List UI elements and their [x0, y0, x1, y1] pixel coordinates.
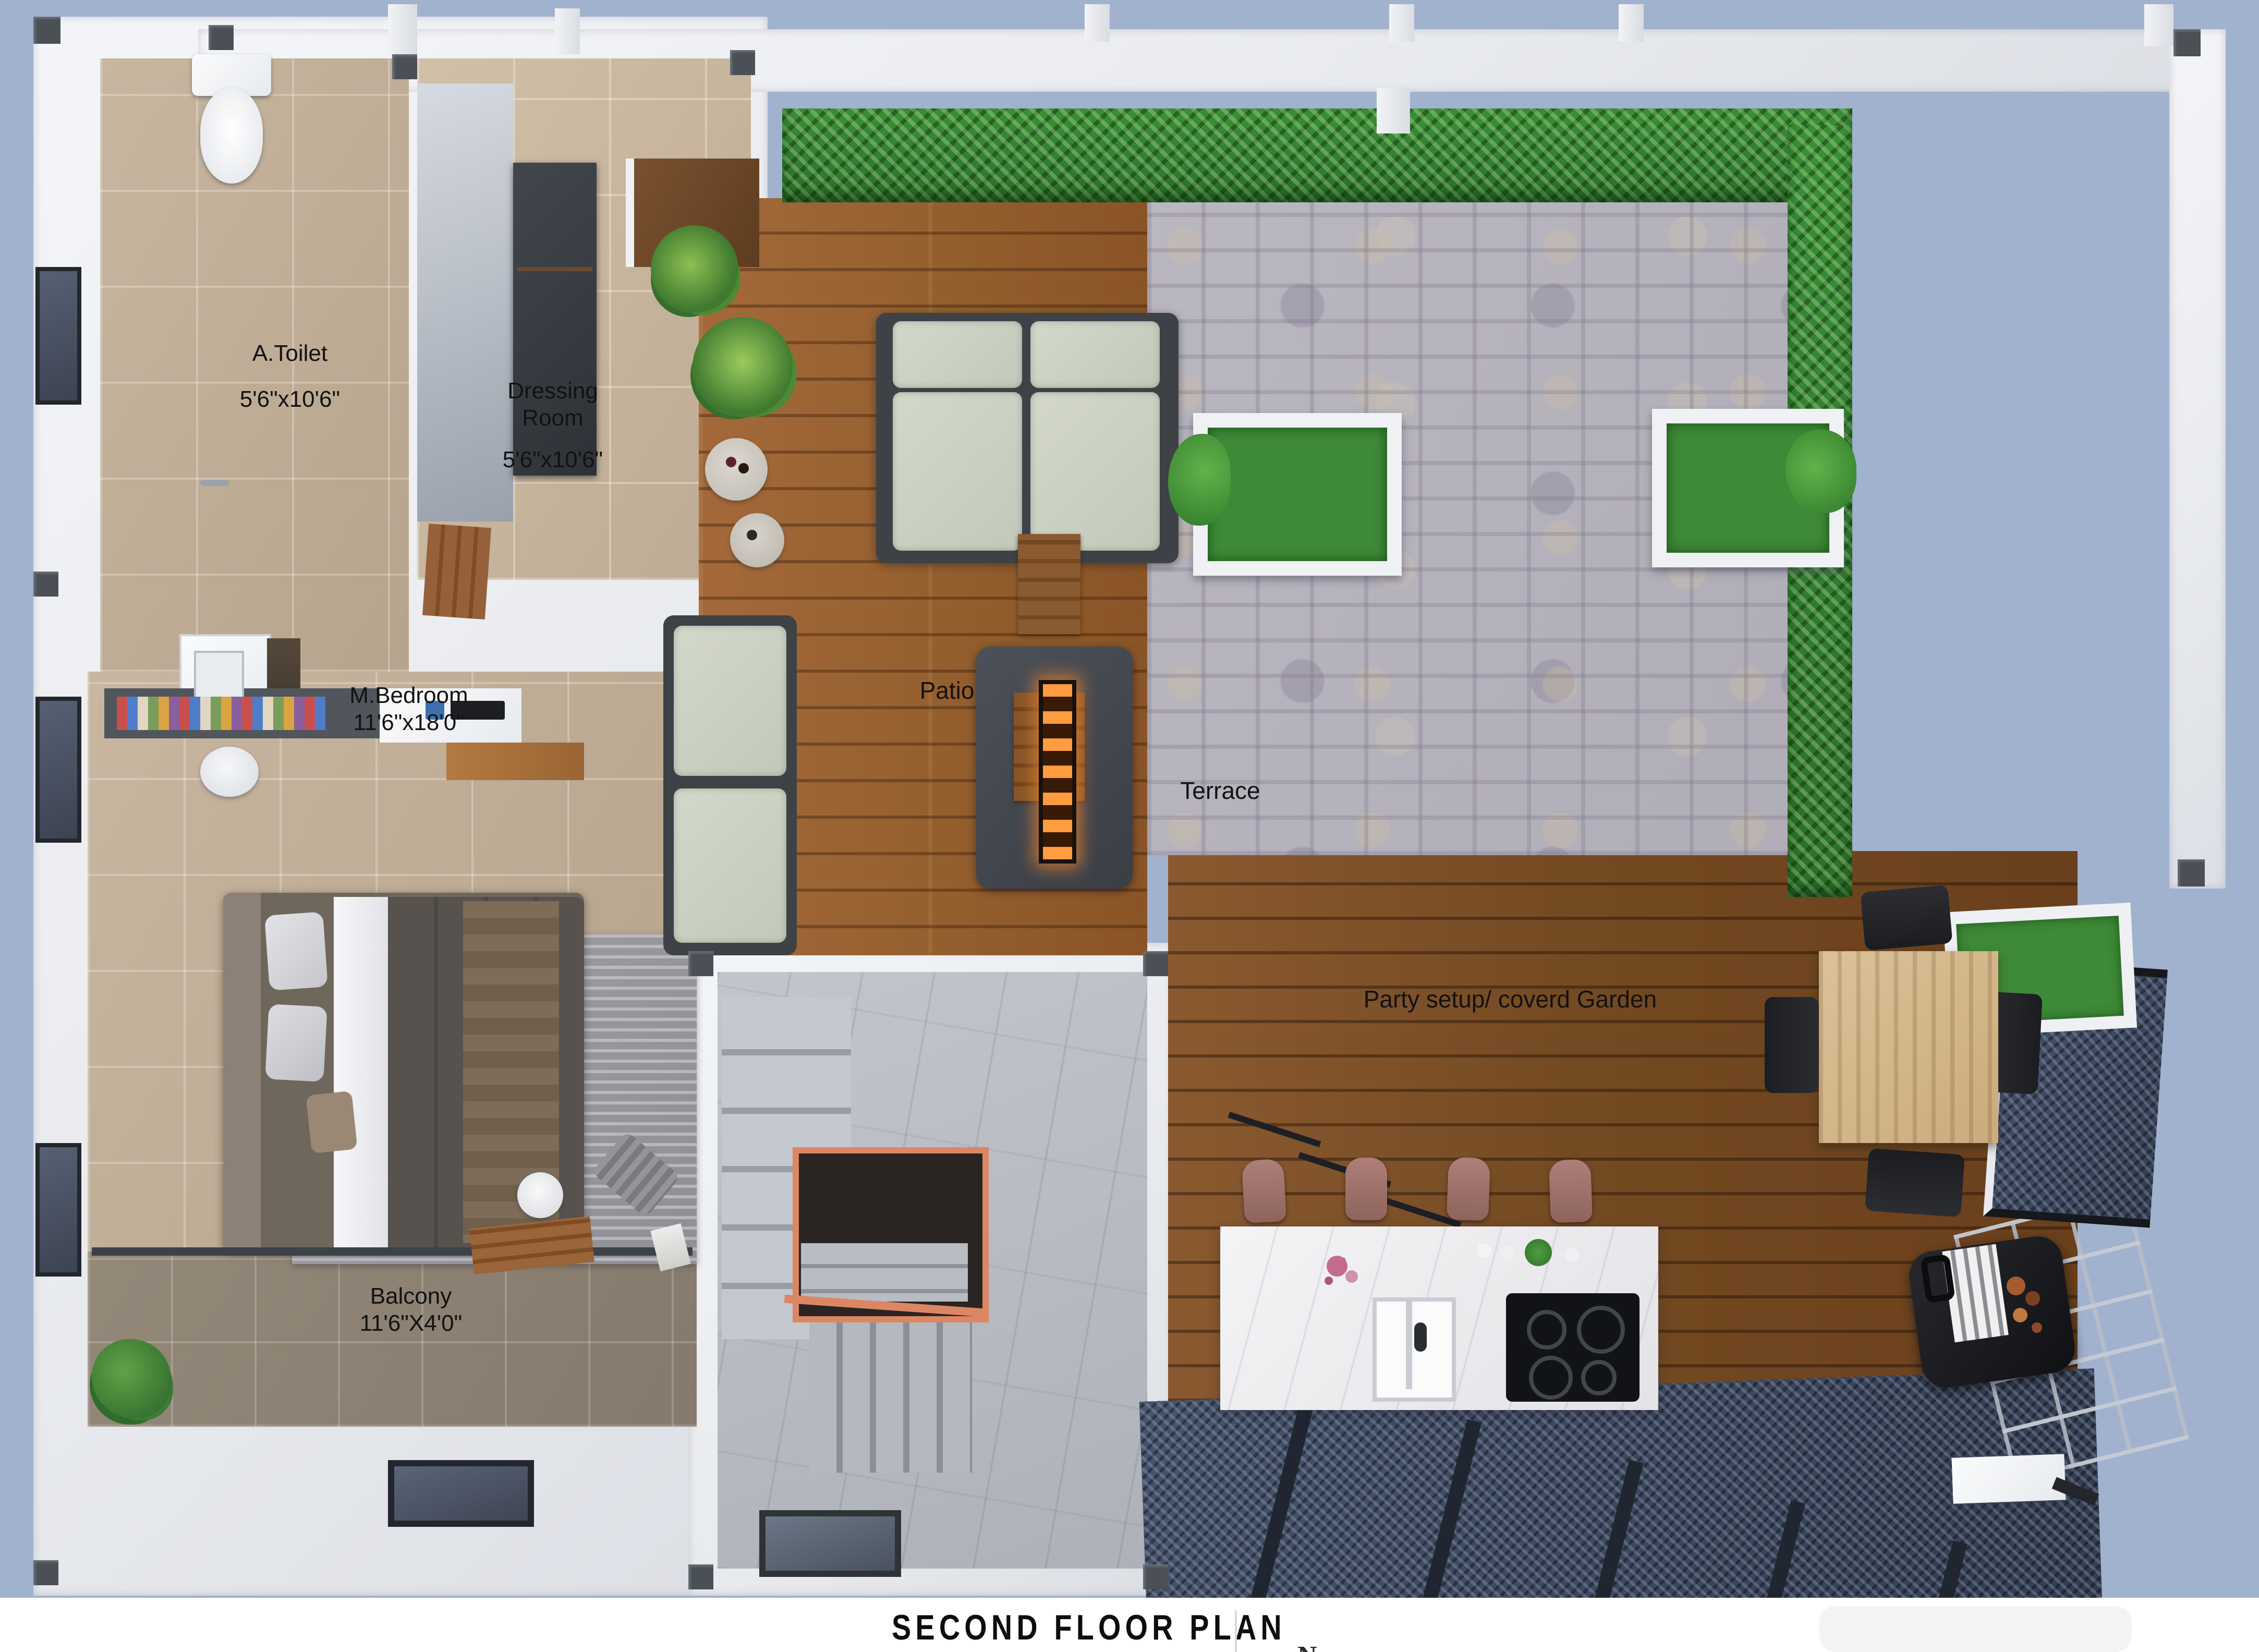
label-dressing: Dressing Room 5'6"x10'6"	[448, 380, 657, 476]
pillar-cap	[730, 50, 755, 75]
l-sofa-cushion	[674, 788, 786, 943]
pillar-cap	[392, 54, 417, 79]
label-patio: Patio	[843, 680, 1051, 707]
dining-chair	[1765, 997, 1819, 1093]
bar-stool	[1549, 1159, 1593, 1223]
label-balcony: Balcony 11'6"X4'0"	[307, 1285, 515, 1339]
balcony-name: Balcony	[307, 1285, 515, 1312]
bottom-white-beam	[1952, 1454, 2066, 1503]
wardrobe-shelf-line	[517, 267, 592, 271]
cooktop	[1506, 1293, 1639, 1402]
desk-chair	[200, 747, 259, 797]
balcony-door-track	[92, 1247, 693, 1256]
sofa-seat-cushion	[893, 392, 1022, 551]
pillar-stub	[1619, 4, 1644, 42]
balcony-floor	[88, 1252, 697, 1427]
bed-headboard	[223, 893, 261, 1252]
dressing-line2: Room	[448, 407, 657, 434]
pillar-cap	[209, 25, 234, 50]
stair-lower-steps	[809, 1318, 972, 1473]
dining-chair	[1865, 1148, 1965, 1218]
floor-plan-render: A.Toilet 5'6"x10'6" Dressing Room 5'6"x1…	[0, 0, 2259, 1652]
desk-wood-top	[446, 743, 584, 780]
pillar-cap	[688, 1564, 713, 1589]
bed-sheet-fold	[334, 897, 388, 1247]
palm-plant	[693, 317, 793, 417]
hedge-top	[782, 108, 1852, 202]
planter-foliage	[1786, 430, 1856, 513]
bed-pillow	[265, 1004, 327, 1082]
dining-chair	[1860, 885, 1952, 951]
pillar-cap	[33, 1560, 58, 1585]
door-handle	[200, 480, 229, 486]
burner	[1527, 1310, 1566, 1350]
round-side-table	[705, 438, 768, 501]
burner	[1577, 1306, 1625, 1354]
window	[35, 267, 81, 405]
pillar-cap	[33, 572, 58, 597]
bed-pillow-small	[306, 1091, 357, 1154]
dressing-dims: 5'6"x10'6"	[448, 448, 657, 476]
bedroom-dims: 11'6"x18'0"	[305, 711, 513, 738]
pillar-stub	[555, 8, 580, 54]
drinks-on-table	[726, 457, 736, 467]
dressing-line1: Dressing	[448, 380, 657, 407]
sofa-back-cushion	[1030, 321, 1160, 388]
burner	[1581, 1360, 1617, 1395]
toilet-dims: 5'6"x10'6"	[186, 388, 394, 415]
toilet-name: A.Toilet	[186, 342, 394, 369]
sink-faucet	[1414, 1322, 1427, 1352]
pouf	[517, 1172, 563, 1218]
balcony-bottom-window	[388, 1460, 534, 1527]
drinks-on-table	[747, 530, 757, 540]
label-bedroom: M.Bedroom 11'6"x18'0"	[305, 684, 513, 738]
planter-foliage	[1168, 434, 1231, 526]
counter-sink	[1373, 1297, 1456, 1402]
round-side-table	[730, 513, 784, 567]
label-toilet: A.Toilet 5'6"x10'6"	[186, 342, 394, 415]
right-beam	[2169, 29, 2226, 889]
wood-side-table	[1018, 534, 1080, 634]
bedroom-name: M.Bedroom	[305, 684, 513, 711]
pillar-cap	[688, 951, 713, 976]
pillar-cap	[33, 17, 60, 44]
dining-table	[1819, 951, 1998, 1143]
north-marker: N	[1297, 1637, 1339, 1652]
label-party: Party setup/ coverd Garden	[1302, 989, 1719, 1016]
sofa-back-cushion	[893, 321, 1022, 388]
window	[35, 697, 81, 843]
pillar-stub	[1389, 4, 1414, 42]
counter-herb-plant	[1525, 1239, 1552, 1266]
label-terrace: Terrace	[1116, 780, 1325, 807]
sofa-seat-cushion	[1030, 392, 1160, 551]
pillar-cap	[1143, 1564, 1168, 1589]
plan-title: SECOND FLOOR PLAN	[704, 1608, 1474, 1650]
dressing-door-wood	[422, 524, 491, 620]
bbq-food	[2007, 1277, 2025, 1295]
balcony-dims: 11'6"X4'0"	[307, 1312, 515, 1339]
pillar-stub	[2144, 4, 2173, 46]
burner	[1529, 1356, 1573, 1400]
north-line	[1235, 1610, 1237, 1652]
pillar-cap	[1143, 951, 1168, 976]
window	[35, 1143, 81, 1277]
pillar-cap	[2173, 29, 2201, 56]
book-spines	[117, 697, 325, 730]
watermark-blob	[1819, 1606, 2132, 1652]
counter-knob	[1477, 1243, 1491, 1258]
hedge-gap-stub	[1377, 88, 1410, 133]
fire-strip	[1039, 680, 1076, 864]
north-letter: N	[1297, 1639, 1317, 1652]
pillar-cap	[2178, 859, 2205, 886]
toilet-bowl	[200, 88, 263, 184]
sink-divider	[1406, 1302, 1412, 1389]
pillar-stub	[388, 4, 417, 58]
stair-window	[759, 1510, 901, 1577]
l-sofa-cushion	[674, 626, 786, 776]
bar-stool	[1447, 1157, 1490, 1221]
bar-stool	[1242, 1159, 1286, 1223]
counter-flowers	[1327, 1256, 1347, 1277]
bbq-handle	[1920, 1254, 1956, 1304]
palm-plant	[651, 225, 738, 313]
stairwell-landing	[801, 1243, 968, 1302]
bar-stool	[1345, 1158, 1387, 1220]
bed-pillow	[264, 912, 328, 990]
pillar-stub	[1085, 4, 1110, 42]
